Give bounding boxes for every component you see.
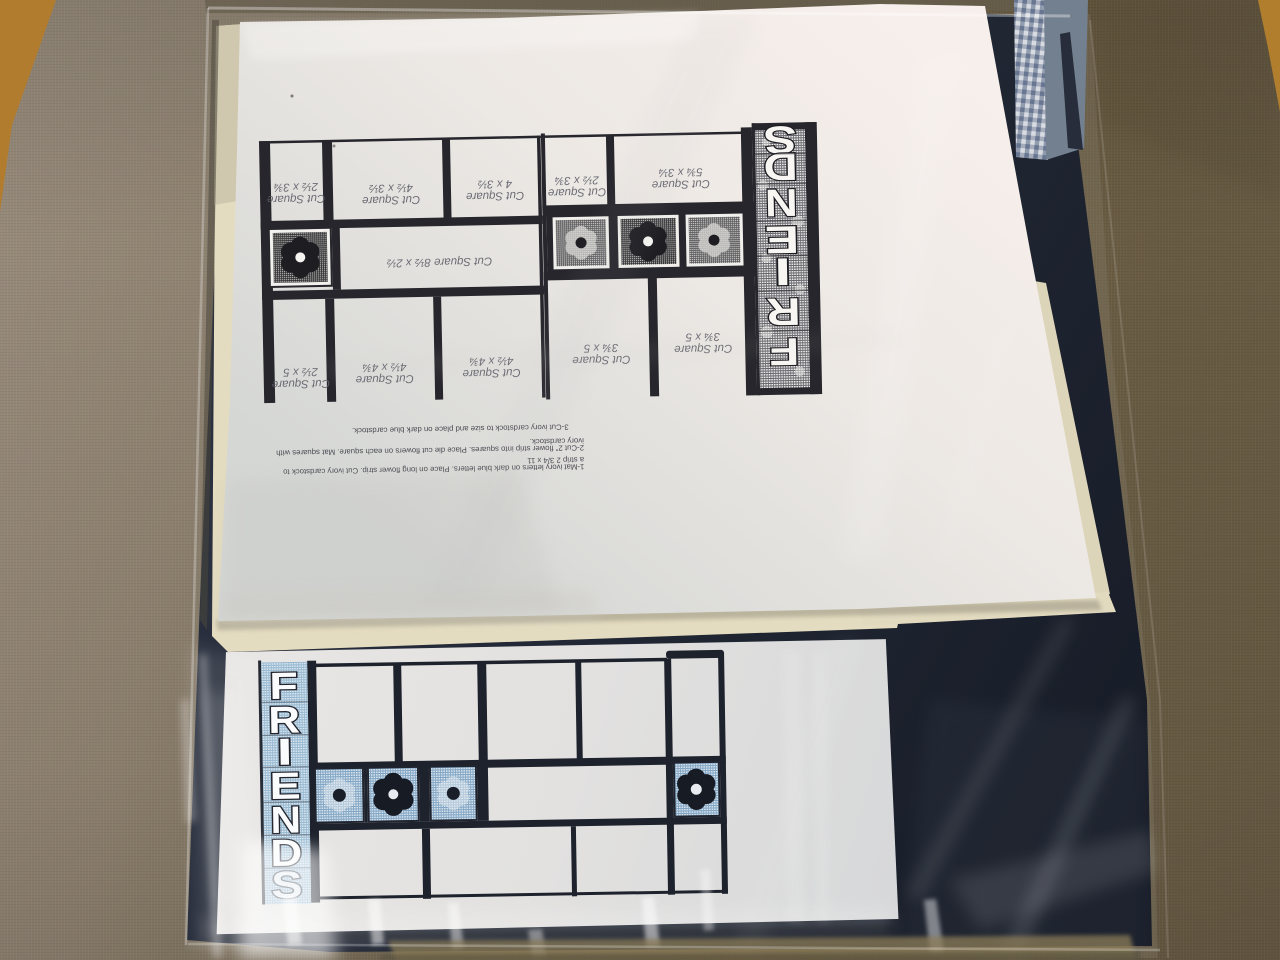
svg-text:R: R	[766, 289, 801, 333]
svg-text:2½ x 3¾: 2½ x 3¾	[273, 180, 319, 193]
svg-text:2½ x 5: 2½ x 5	[283, 365, 319, 378]
svg-text:2½ x 3¾: 2½ x 3¾	[554, 173, 600, 186]
svg-text:Cut Square 8½ x 2½: Cut Square 8½ x 2½	[386, 255, 492, 269]
svg-text:Cut Square: Cut Square	[272, 377, 330, 390]
svg-text:Cut Square: Cut Square	[466, 189, 524, 202]
svg-text:4½ x 3½: 4½ x 3½	[368, 181, 413, 194]
svg-text:4 x 3½: 4 x 3½	[477, 177, 512, 190]
